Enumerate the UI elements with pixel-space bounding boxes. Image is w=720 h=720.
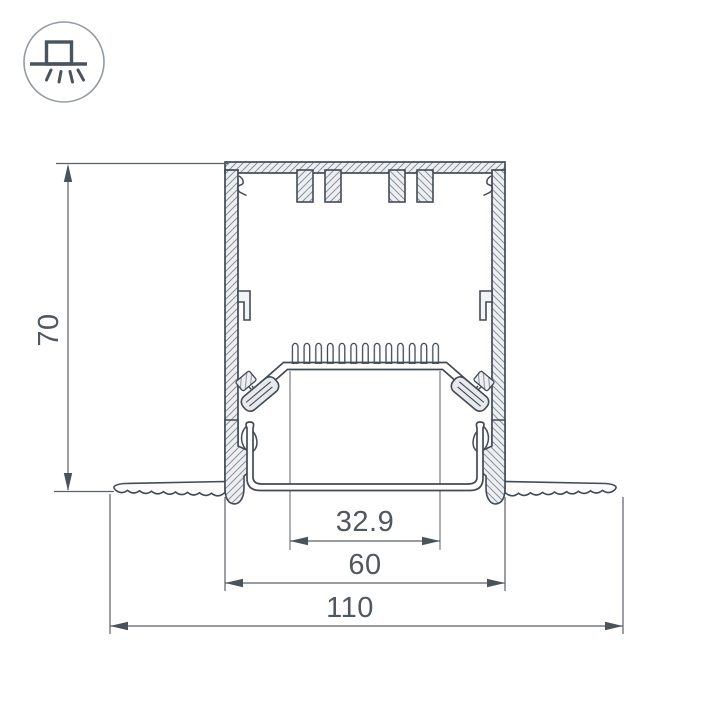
left-side-assembly xyxy=(114,170,341,504)
profile-top-wall xyxy=(225,162,505,173)
recessed-mounted-luminaire-icon xyxy=(24,22,104,102)
arrowhead-left xyxy=(110,622,128,630)
diffuser-channel xyxy=(246,422,484,491)
dimension-height-70: 70 xyxy=(33,164,228,492)
technical-drawing-page: 70 32.9 60 110 xyxy=(0,0,720,720)
heatsink-fins xyxy=(289,341,441,364)
arrowhead-down xyxy=(64,473,72,491)
arrowhead-up xyxy=(64,164,72,182)
arrowhead-right xyxy=(422,537,440,545)
dimension-label-body: 60 xyxy=(348,549,381,581)
dimension-window-32-9: 32.9 xyxy=(290,506,440,545)
profile-body xyxy=(114,162,616,550)
arrowhead-right xyxy=(487,579,505,587)
arrowhead-left xyxy=(225,579,243,587)
dimension-label-overall: 110 xyxy=(326,592,374,624)
arrowhead-right xyxy=(605,622,623,630)
diffuser xyxy=(246,422,484,491)
icon-circle xyxy=(24,22,104,102)
heatsink xyxy=(284,341,446,370)
dimensions: 70 32.9 60 110 xyxy=(33,164,623,635)
arrowhead-left xyxy=(290,537,308,545)
right-side-assembly-mirror xyxy=(389,170,616,504)
dimension-label-height: 70 xyxy=(33,313,65,346)
profile-cross-section-drawing: 70 32.9 60 110 xyxy=(0,0,720,720)
dimension-label-window: 32.9 xyxy=(336,506,394,538)
